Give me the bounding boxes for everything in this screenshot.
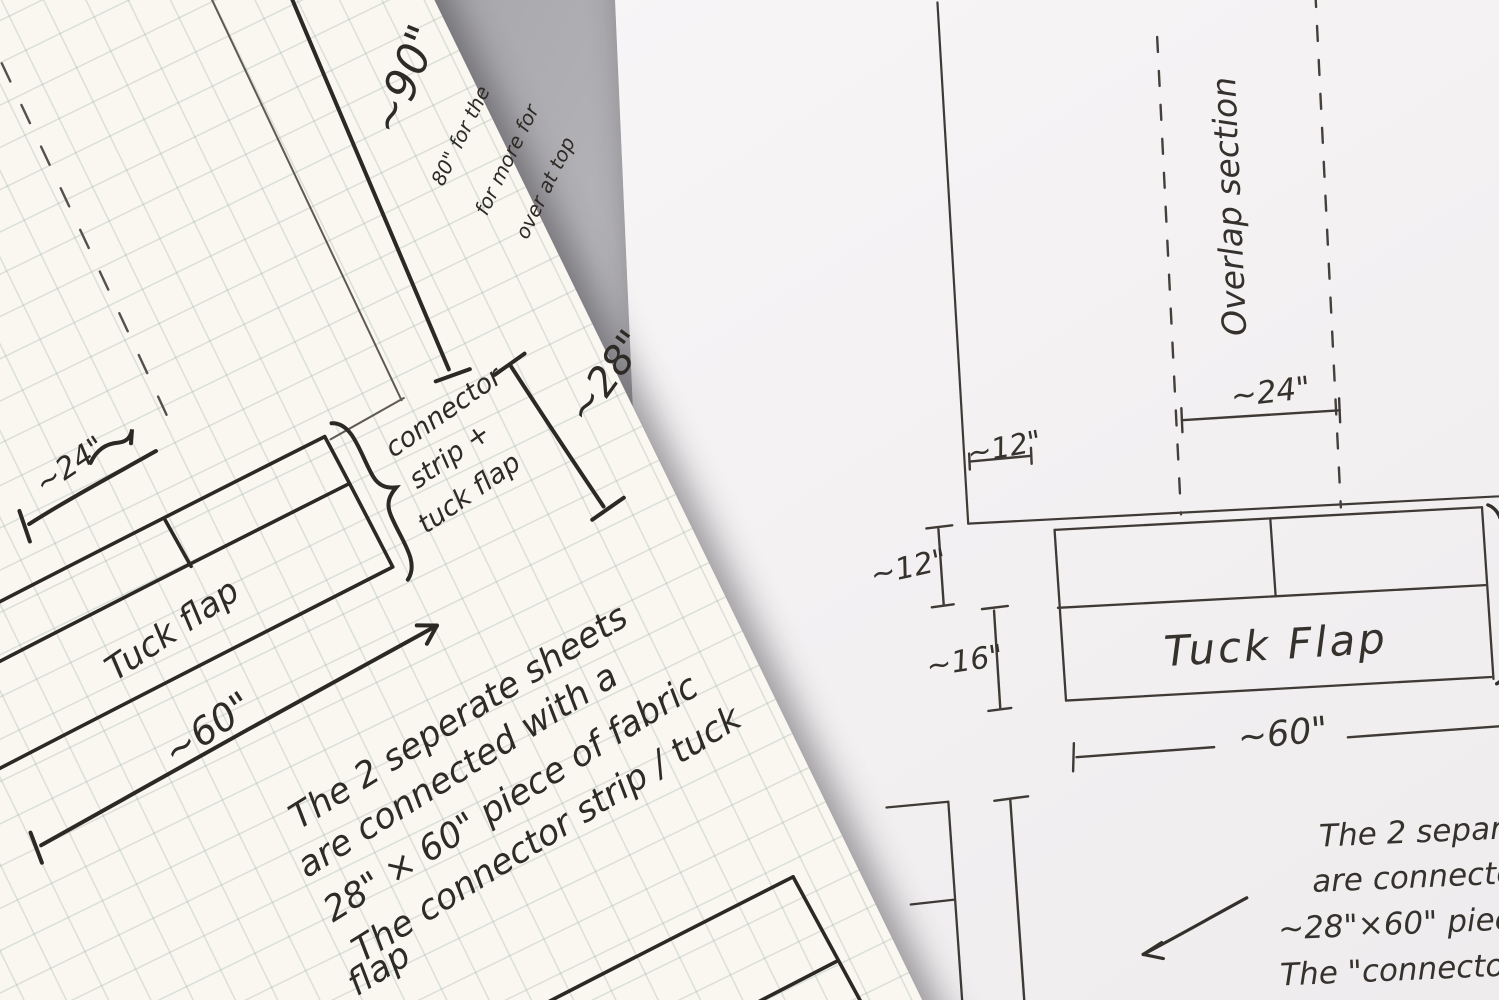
pointer-arrow xyxy=(1141,898,1249,960)
connector-strip-and-tuck-flap-rects xyxy=(1054,507,1493,701)
dimension-lines xyxy=(0,0,656,863)
overlap-dashed-line xyxy=(0,22,181,433)
right-brace xyxy=(1488,504,1499,684)
pencil-sheet-edge xyxy=(28,0,411,439)
photo-of-two-sketch-sheets: Overlap section ~24" ~12" ~12" ~16" Tuck… xyxy=(0,0,1499,1000)
dim-60-label-right: ~60" xyxy=(1236,710,1329,758)
second-sheet-partial-rect xyxy=(444,873,892,1000)
